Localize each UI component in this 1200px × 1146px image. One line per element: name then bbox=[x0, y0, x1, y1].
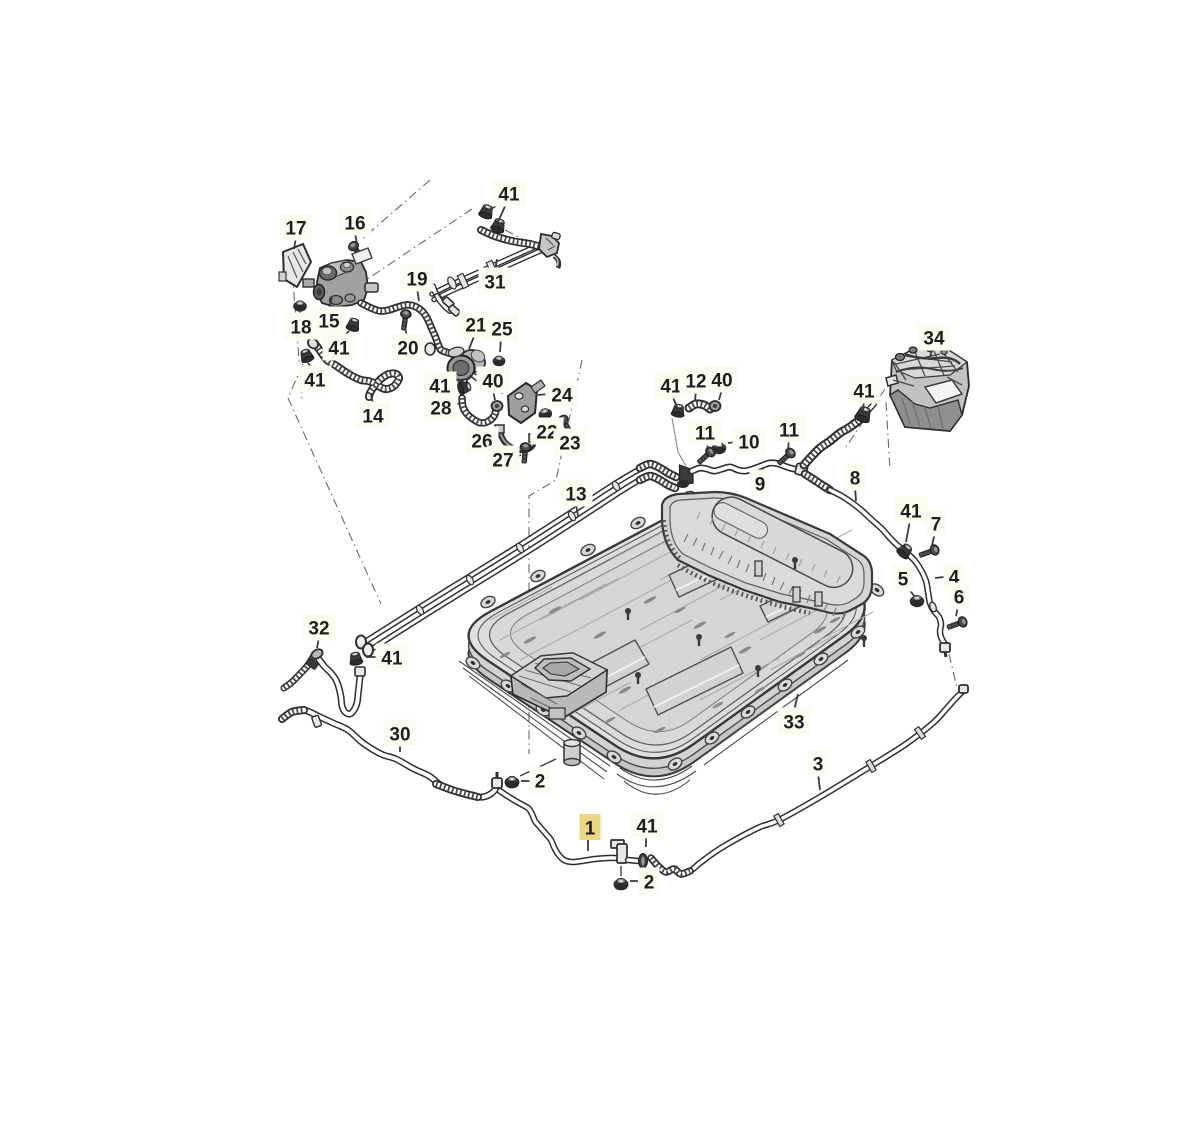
svg-text:21: 21 bbox=[465, 316, 487, 337]
svg-text:41: 41 bbox=[304, 371, 326, 392]
svg-text:8: 8 bbox=[850, 469, 861, 490]
svg-text:6: 6 bbox=[954, 588, 965, 609]
svg-text:20: 20 bbox=[397, 339, 418, 360]
svg-text:23: 23 bbox=[559, 434, 580, 455]
svg-text:41: 41 bbox=[660, 377, 682, 398]
svg-text:31: 31 bbox=[484, 273, 506, 294]
svg-text:1: 1 bbox=[585, 819, 596, 840]
svg-text:14: 14 bbox=[362, 407, 384, 428]
svg-text:41: 41 bbox=[498, 185, 520, 206]
svg-text:25: 25 bbox=[491, 320, 513, 341]
svg-text:11: 11 bbox=[779, 421, 800, 442]
svg-text:2: 2 bbox=[644, 873, 655, 894]
svg-text:19: 19 bbox=[406, 270, 427, 291]
svg-text:30: 30 bbox=[389, 725, 410, 746]
svg-text:41: 41 bbox=[328, 339, 350, 360]
svg-text:40: 40 bbox=[482, 372, 503, 393]
svg-text:5: 5 bbox=[898, 570, 909, 591]
svg-text:40: 40 bbox=[711, 371, 732, 392]
svg-text:18: 18 bbox=[290, 318, 311, 339]
svg-text:32: 32 bbox=[308, 619, 329, 640]
svg-text:11: 11 bbox=[695, 424, 716, 445]
svg-text:9: 9 bbox=[755, 475, 766, 496]
svg-text:24: 24 bbox=[551, 386, 573, 407]
svg-text:33: 33 bbox=[783, 713, 804, 734]
svg-text:3: 3 bbox=[813, 755, 824, 776]
svg-text:17: 17 bbox=[285, 219, 306, 240]
svg-text:34: 34 bbox=[923, 329, 945, 350]
svg-text:41: 41 bbox=[900, 502, 922, 523]
svg-text:41: 41 bbox=[853, 382, 875, 403]
svg-text:27: 27 bbox=[492, 451, 513, 472]
svg-text:7: 7 bbox=[931, 515, 942, 536]
svg-text:2: 2 bbox=[535, 772, 546, 793]
svg-text:28: 28 bbox=[430, 399, 451, 420]
svg-text:15: 15 bbox=[318, 312, 340, 333]
svg-text:41: 41 bbox=[381, 649, 403, 670]
svg-text:13: 13 bbox=[565, 485, 586, 506]
svg-text:16: 16 bbox=[344, 214, 365, 235]
svg-text:12: 12 bbox=[685, 372, 706, 393]
svg-text:10: 10 bbox=[738, 433, 759, 454]
svg-text:41: 41 bbox=[636, 817, 658, 838]
